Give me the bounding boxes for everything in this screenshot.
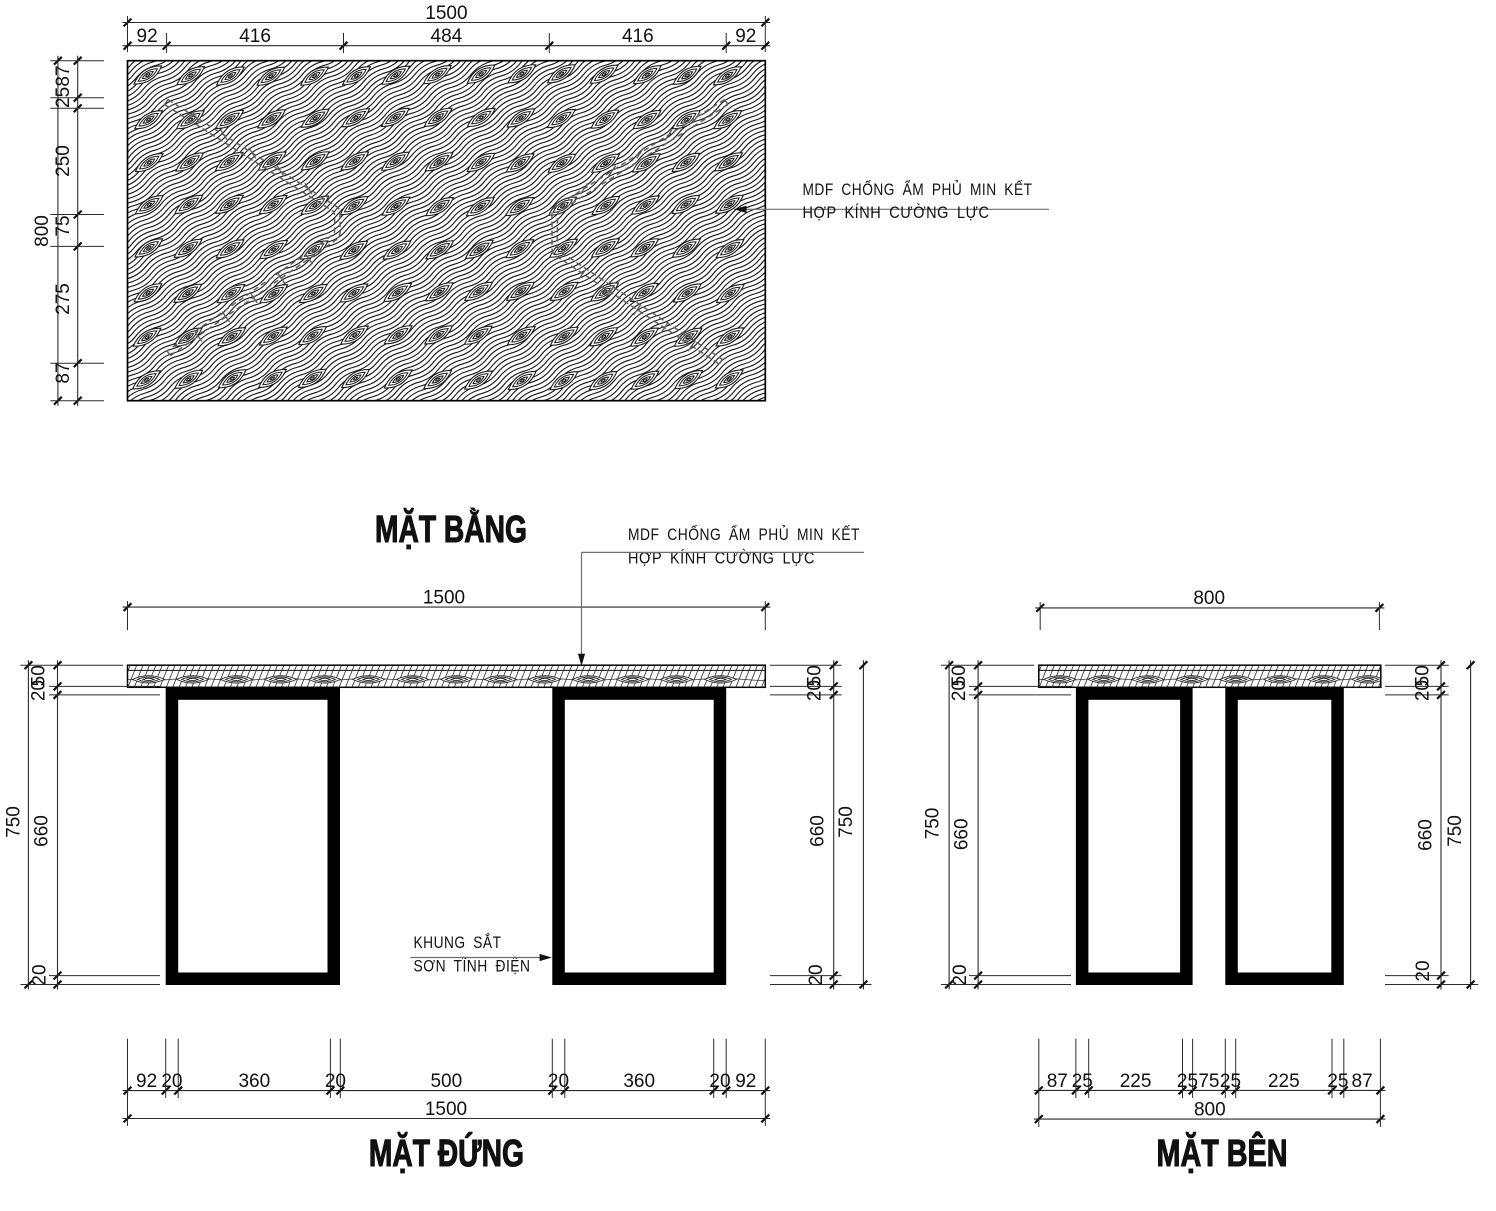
svg-text:MDF CHỐNG ẨM PHỦ MIN KẾT: MDF CHỐNG ẨM PHỦ MIN KẾT [628, 524, 860, 544]
svg-text:20: 20 [949, 680, 970, 701]
svg-text:20: 20 [29, 680, 50, 701]
svg-text:225: 225 [1120, 1071, 1152, 1092]
svg-text:20: 20 [806, 964, 827, 985]
svg-text:660: 660 [808, 815, 829, 847]
svg-text:484: 484 [431, 26, 463, 47]
svg-text:360: 360 [623, 1071, 655, 1092]
svg-text:360: 360 [238, 1071, 270, 1092]
svg-text:25: 25 [1072, 1071, 1093, 1092]
svg-text:20: 20 [950, 964, 971, 985]
svg-text:750: 750 [1445, 815, 1466, 847]
svg-text:800: 800 [32, 215, 53, 247]
svg-text:87: 87 [1352, 1071, 1373, 1092]
svg-text:25: 25 [1327, 1071, 1348, 1092]
svg-text:750: 750 [836, 806, 857, 838]
svg-text:MDF CHỐNG ẨM PHỦ MIN KẾT: MDF CHỐNG ẨM PHỦ MIN KẾT [803, 179, 1033, 199]
svg-text:MẶT BÊN: MẶT BÊN [1157, 1131, 1288, 1175]
svg-text:92: 92 [735, 26, 756, 47]
svg-text:25: 25 [1177, 1071, 1198, 1092]
svg-text:250: 250 [53, 145, 74, 177]
svg-text:800: 800 [1194, 1100, 1226, 1121]
svg-text:MẶT BẰNG: MẶT BẰNG [375, 507, 527, 551]
svg-text:25: 25 [1220, 1071, 1241, 1092]
svg-text:416: 416 [622, 26, 654, 47]
svg-text:750: 750 [3, 806, 24, 838]
svg-text:20: 20 [30, 964, 51, 985]
svg-text:225: 225 [1268, 1071, 1300, 1092]
svg-text:KHUNG SẮT: KHUNG SẮT [414, 933, 502, 952]
svg-text:MẶT ĐỨNG: MẶT ĐỨNG [369, 1131, 524, 1175]
svg-text:75: 75 [1198, 1071, 1219, 1092]
svg-text:275: 275 [53, 283, 74, 315]
svg-text:20: 20 [161, 1071, 182, 1092]
svg-text:92: 92 [735, 1071, 756, 1092]
svg-text:20: 20 [1413, 960, 1434, 981]
svg-text:87: 87 [1047, 1071, 1068, 1092]
svg-text:20: 20 [709, 1071, 730, 1092]
svg-text:20: 20 [1413, 680, 1434, 701]
svg-text:800: 800 [1193, 588, 1225, 609]
svg-text:1500: 1500 [425, 1099, 467, 1120]
svg-text:87: 87 [53, 362, 74, 383]
svg-text:500: 500 [430, 1071, 462, 1092]
svg-text:660: 660 [32, 815, 53, 847]
svg-text:660: 660 [1415, 819, 1436, 851]
svg-text:416: 416 [239, 26, 271, 47]
svg-text:SƠN TĨNH ĐIỆN: SƠN TĨNH ĐIỆN [414, 956, 531, 976]
svg-text:750: 750 [922, 808, 943, 840]
svg-text:75: 75 [53, 215, 74, 236]
svg-text:1500: 1500 [423, 587, 465, 608]
svg-text:25: 25 [53, 87, 74, 108]
svg-text:92: 92 [137, 26, 158, 47]
svg-text:660: 660 [951, 818, 972, 850]
svg-text:HỢP KÍNH CƯỜNG LỰC: HỢP KÍNH CƯỜNG LỰC [628, 549, 815, 568]
svg-text:HỢP KÍNH CƯỜNG LỰC: HỢP KÍNH CƯỜNG LỰC [803, 203, 990, 222]
svg-text:92: 92 [136, 1071, 157, 1092]
svg-text:20: 20 [805, 680, 826, 701]
svg-text:20: 20 [325, 1071, 346, 1092]
svg-text:87: 87 [53, 65, 74, 86]
svg-text:1500: 1500 [425, 3, 467, 24]
svg-text:20: 20 [548, 1071, 569, 1092]
